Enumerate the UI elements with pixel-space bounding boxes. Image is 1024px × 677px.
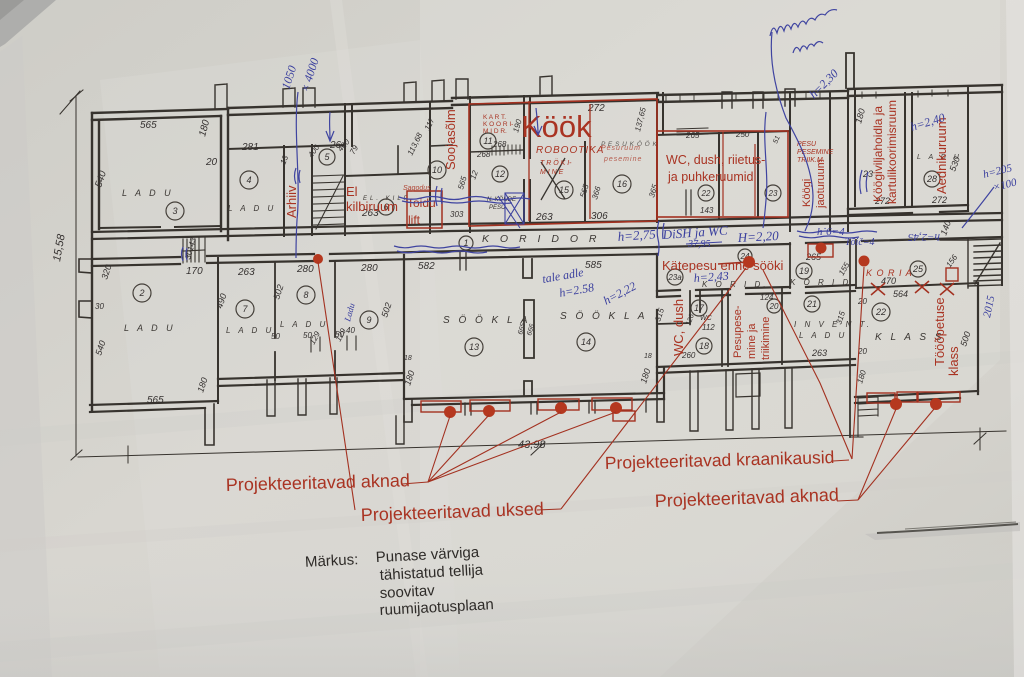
svg-text:Aednikuruum: Aednikuruum bbox=[934, 117, 949, 194]
svg-text:K O R I A: K O R I A bbox=[866, 268, 913, 278]
svg-text:303: 303 bbox=[450, 210, 464, 219]
svg-text:281: 281 bbox=[241, 142, 259, 153]
svg-text:23a: 23a bbox=[667, 273, 682, 282]
svg-text:L A D U: L A D U bbox=[122, 188, 174, 198]
svg-text:L A D U: L A D U bbox=[228, 204, 276, 213]
svg-text:Soojasõlm: Soojasõlm bbox=[443, 109, 458, 170]
svg-text:Sagodus: Sagodus bbox=[403, 185, 431, 192]
svg-text:4: 4 bbox=[246, 175, 251, 185]
svg-text:23: 23 bbox=[768, 189, 778, 198]
svg-text:WC, dush, riietus-: WC, dush, riietus- bbox=[666, 153, 765, 167]
svg-text:M I N E: M I N E bbox=[540, 169, 564, 176]
svg-text:18: 18 bbox=[699, 341, 709, 351]
svg-text:11: 11 bbox=[483, 136, 492, 146]
svg-text:17: 17 bbox=[694, 303, 705, 313]
svg-text:263: 263 bbox=[237, 267, 255, 278]
svg-text:H=2,20: H=2,20 bbox=[736, 228, 779, 245]
svg-text:jaoturuum: jaoturuum bbox=[815, 159, 827, 209]
svg-text:19: 19 bbox=[799, 266, 809, 276]
svg-text:10: 10 bbox=[432, 165, 442, 175]
svg-text:143: 143 bbox=[700, 206, 714, 215]
svg-text:21: 21 bbox=[806, 299, 817, 309]
svg-text:TRIIK.M.: TRIIK.M. bbox=[797, 157, 825, 164]
svg-text:14: 14 bbox=[581, 337, 591, 347]
svg-text:280: 280 bbox=[360, 263, 378, 274]
svg-text:8: 8 bbox=[303, 290, 308, 300]
svg-text:20: 20 bbox=[769, 302, 779, 311]
svg-text:Köök: Köök bbox=[521, 109, 592, 144]
svg-text:L A D U: L A D U bbox=[799, 331, 847, 340]
svg-text:T R Ö K I-: T R Ö K I- bbox=[540, 159, 572, 167]
svg-text:3: 3 bbox=[172, 206, 177, 216]
svg-text:mine ja: mine ja bbox=[746, 323, 758, 359]
svg-text:585: 585 bbox=[585, 260, 602, 271]
svg-text:22: 22 bbox=[701, 189, 711, 198]
svg-text:16: 16 bbox=[617, 179, 627, 189]
svg-text:K A R T.: K A R T. bbox=[483, 114, 506, 121]
svg-text:h=2,45: h=2,45 bbox=[907, 231, 940, 243]
svg-text:2: 2 bbox=[138, 288, 144, 298]
svg-text:S Ö Ö K L A: S Ö Ö K L A bbox=[560, 310, 647, 322]
svg-text:22: 22 bbox=[875, 307, 886, 317]
svg-text:PESU: PESU bbox=[489, 205, 506, 211]
svg-text:kartulikoorimisruum: kartulikoorimisruum bbox=[885, 100, 899, 204]
svg-text:L A D U: L A D U bbox=[280, 320, 328, 329]
svg-text:43,98: 43,98 bbox=[518, 439, 546, 451]
svg-text:Köögiviljahoidla ja: Köögiviljahoidla ja bbox=[871, 106, 885, 202]
svg-text:Pesuruum: Pesuruum bbox=[601, 145, 641, 152]
svg-text:565: 565 bbox=[147, 395, 164, 406]
svg-text:M I D R.: M I D R. bbox=[483, 128, 507, 135]
svg-text:15: 15 bbox=[559, 185, 570, 195]
svg-text:565: 565 bbox=[140, 120, 157, 131]
svg-text:272: 272 bbox=[931, 195, 947, 205]
svg-text:18: 18 bbox=[644, 353, 652, 360]
svg-text:kilbiruum: kilbiruum bbox=[346, 199, 398, 214]
svg-text:280: 280 bbox=[296, 264, 314, 275]
svg-text:WC, dush: WC, dush bbox=[671, 299, 686, 356]
svg-text:582: 582 bbox=[418, 261, 435, 272]
svg-text:h=2,75: h=2,75 bbox=[617, 226, 656, 244]
svg-text:306: 306 bbox=[591, 211, 608, 222]
svg-text:268: 268 bbox=[492, 140, 507, 149]
svg-text:ja puhkeruumid: ja puhkeruumid bbox=[667, 170, 754, 184]
svg-text:37,95: 37,95 bbox=[687, 239, 711, 250]
svg-text:30: 30 bbox=[95, 302, 104, 311]
svg-text:L A D U: L A D U bbox=[124, 323, 176, 333]
svg-text:El: El bbox=[346, 184, 358, 199]
svg-text:pesemine: pesemine bbox=[603, 156, 642, 163]
svg-text:ROBOOTIKA: ROBOOTIKA bbox=[536, 145, 604, 156]
svg-text:klass: klass bbox=[946, 346, 961, 376]
svg-text:Arhiiv: Arhiiv bbox=[284, 185, 299, 218]
svg-text:Märkus:: Märkus: bbox=[305, 551, 359, 571]
svg-text:20: 20 bbox=[205, 157, 218, 168]
svg-text:25: 25 bbox=[912, 264, 924, 274]
svg-text:13: 13 bbox=[469, 342, 479, 352]
svg-text:265: 265 bbox=[685, 131, 700, 140]
svg-text:h˙6=4: h˙6=4 bbox=[817, 226, 845, 238]
svg-text:triikimine: triikimine bbox=[760, 317, 772, 360]
svg-text:263: 263 bbox=[535, 212, 553, 223]
svg-text:18: 18 bbox=[404, 355, 412, 362]
svg-text:112: 112 bbox=[702, 323, 715, 332]
svg-text:268: 268 bbox=[476, 150, 491, 159]
svg-text:K O R I D: K O R I D bbox=[790, 278, 851, 287]
svg-text:K O O R I-: K O O R I- bbox=[483, 121, 513, 128]
svg-text:Tööõpetuse: Tööõpetuse bbox=[932, 297, 947, 366]
svg-text:12: 12 bbox=[495, 169, 505, 179]
svg-text:K O R I D O R: K O R I D O R bbox=[482, 233, 601, 245]
svg-text:Tõič=4: Tõič=4 bbox=[845, 237, 875, 248]
svg-text:L A D U: L A D U bbox=[226, 326, 274, 335]
svg-text:lift: lift bbox=[408, 213, 421, 227]
svg-text:564: 564 bbox=[893, 289, 908, 299]
svg-text:263: 263 bbox=[811, 348, 827, 358]
svg-text:124: 124 bbox=[760, 293, 774, 302]
svg-text:170: 170 bbox=[186, 266, 203, 277]
svg-text:S Ö Ö K L A: S Ö Ö K L A bbox=[443, 314, 530, 326]
svg-text:h=2,43: h=2,43 bbox=[693, 269, 729, 285]
svg-text:40: 40 bbox=[346, 326, 355, 335]
svg-text:9: 9 bbox=[366, 315, 371, 325]
svg-text:Pesupese-: Pesupese- bbox=[732, 305, 744, 358]
